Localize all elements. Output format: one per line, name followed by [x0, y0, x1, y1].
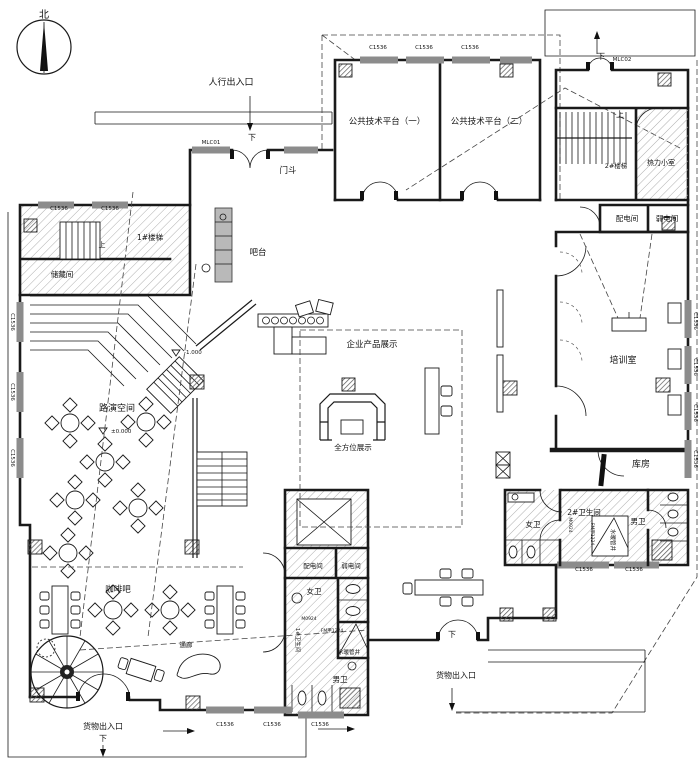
restroom1-label: 1#卫生间	[294, 628, 302, 653]
door-tag-fm1224-r1: FM甲1224	[321, 628, 344, 634]
roadshow-area	[30, 296, 256, 578]
up-mark-1: 上	[99, 240, 106, 249]
goods-entrance-sw-label: 货物出入口	[83, 721, 123, 731]
floor-plan-drawing: 北人行出入口下MLC01门斗C1536C1536C1536公共技术平台（一）公共…	[0, 0, 700, 760]
vestibule-label: 门斗	[279, 165, 297, 176]
window-tag-r1: C1536	[692, 312, 698, 330]
window-tag-nw2: C1536	[101, 206, 119, 212]
north-label: 北	[39, 9, 49, 21]
power-room2-label: 配电间	[616, 213, 639, 223]
product-display-label: 企业产品展示	[346, 339, 397, 350]
window-tag-b5: C1536	[625, 567, 643, 573]
down-mark-3: 下	[99, 734, 107, 743]
down-mark-2: 下	[597, 52, 605, 61]
window-tag-top-3: C1536	[461, 45, 479, 51]
window-tag-nw1: C1536	[50, 206, 68, 212]
elevation-zero: ±0.000	[111, 429, 132, 435]
core-block	[263, 490, 368, 719]
elevation-upper: -1.000	[184, 350, 202, 356]
bar-counter	[202, 208, 232, 282]
platform1-label: 公共技术平台（一）	[349, 116, 426, 127]
stair2-label: 2#楼梯	[605, 161, 628, 170]
womens2-label: 女卫	[526, 519, 541, 529]
warehouse-label: 库房	[632, 458, 650, 470]
storage-small-label: 储藏间	[51, 269, 74, 279]
window-tag-b4: C1536	[575, 567, 593, 573]
door-tag-m0924-r2: M0924	[567, 517, 573, 532]
womens1-label: 女卫	[307, 586, 322, 596]
mens2-label: 男卫	[631, 517, 646, 526]
coffee-area	[31, 567, 483, 708]
mens1-label: 男卫	[333, 675, 348, 684]
window-tag-b1: C1536	[216, 722, 234, 728]
goods-entrance-s-label: 货物出入口	[436, 670, 476, 680]
window-tag-wl1: C1536	[9, 313, 15, 331]
window-tag-wl2: C1536	[9, 383, 15, 401]
window-tag-r2: C1536	[692, 358, 698, 376]
heating-room-label: 热力小室	[647, 158, 675, 167]
window-tag-r4: C1536	[692, 450, 698, 468]
pipe-shaft1-label: 水暖管井	[338, 648, 361, 656]
north-walkway	[95, 96, 332, 131]
platform2-label: 公共技术平台（二）	[451, 116, 528, 127]
lowvolt-room2-label: 弱电间	[656, 213, 679, 223]
restroom2-label: 2#卫生间	[567, 507, 601, 517]
power-room1-label: 配电间	[303, 561, 323, 570]
door-tag-m0924-r1: M0924	[301, 616, 316, 622]
window-tag-b2: C1536	[263, 722, 281, 728]
window-tag-top-2: C1536	[415, 45, 433, 51]
vestibule-wall	[190, 147, 332, 206]
platform-rooms	[335, 57, 540, 201]
pedestrian-entrance-label: 人行出入口	[208, 76, 253, 88]
door-tag-fm1224-r2: FM甲1224	[589, 523, 595, 546]
up-mark-2: 上	[616, 110, 624, 119]
roadshow-label: 路演空间	[99, 402, 135, 414]
compass-rose	[17, 20, 71, 74]
allround-display-label: 全方位展示	[334, 442, 372, 452]
restroom2-block	[505, 490, 688, 569]
pipe-shaft2-label: 水暖管井	[609, 529, 617, 552]
window-tag-r3: C1536	[692, 404, 698, 422]
training-room-label: 培训室	[609, 354, 636, 366]
down-mark-1: 下	[248, 133, 256, 142]
corridor-label: 通廊	[180, 640, 194, 649]
spiral-stair	[31, 636, 103, 708]
floor-plan-page: 北人行出入口下MLC01门斗C1536C1536C1536公共技术平台（一）公共…	[0, 0, 700, 760]
door-tag-mlc02: MLC02	[613, 57, 632, 63]
door-tag-mlc01: MLC01	[202, 140, 221, 146]
window-tag-b3: C1536	[311, 722, 329, 728]
bar-counter-label: 吧台	[249, 247, 266, 258]
lowvolt-room1-label: 弱电间	[341, 561, 361, 570]
down-mark-4: 下	[448, 630, 456, 639]
window-tag-wl3: C1536	[9, 449, 15, 467]
coffee-bar-label: 咖啡吧	[105, 584, 131, 595]
window-tag-top-1: C1536	[369, 45, 387, 51]
stair1-label: 1#楼梯	[137, 232, 164, 242]
